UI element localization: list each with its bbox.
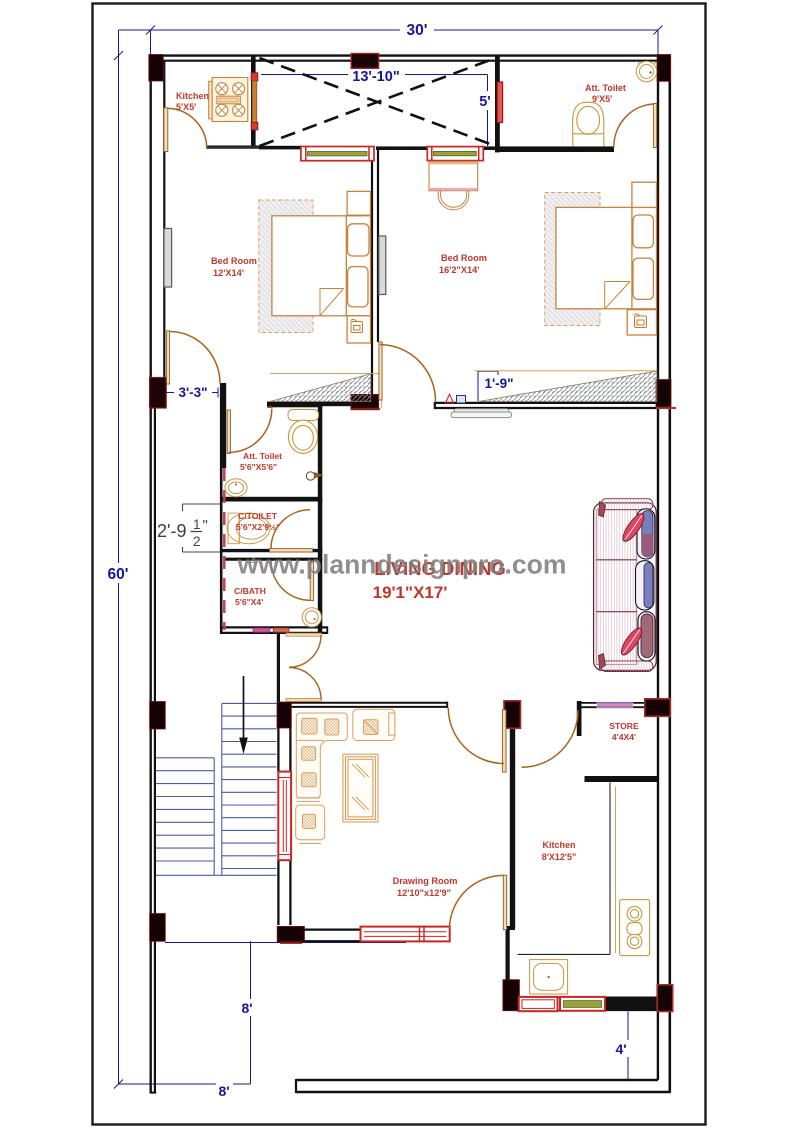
svg-text:4'4X4': 4'4X4' (612, 732, 636, 742)
svg-text:30': 30' (407, 22, 428, 39)
svg-text:8': 8' (218, 1083, 229, 1099)
svg-text:Att. Toilet: Att. Toilet (585, 83, 626, 93)
svg-text:5'6"X4': 5'6"X4' (235, 597, 263, 607)
svg-text:16'2"X14': 16'2"X14' (439, 265, 479, 275)
svg-text:Kitchen: Kitchen (176, 91, 209, 101)
svg-text:5'6"X5'6": 5'6"X5'6" (240, 462, 277, 472)
svg-text:STORE: STORE (609, 721, 639, 731)
svg-text:2'-9: 2'-9 (157, 521, 186, 541)
svg-text:Bed Room: Bed Room (211, 256, 257, 266)
svg-text:C/TOILET: C/TOILET (238, 511, 278, 521)
svg-text:Att. Toilet: Att. Toilet (243, 451, 282, 461)
svg-text:Kitchen: Kitchen (542, 840, 575, 850)
svg-text:Drawing Room: Drawing Room (393, 876, 458, 886)
svg-text:": " (203, 517, 208, 534)
svg-text:C/BATH: C/BATH (234, 586, 266, 596)
svg-text:19'1"X17': 19'1"X17' (373, 583, 448, 602)
svg-text:www.planndesignpro.com: www.planndesignpro.com (237, 550, 567, 580)
svg-text:Bed Room: Bed Room (441, 253, 487, 263)
svg-text:3'-3": 3'-3" (178, 385, 207, 400)
svg-text:5'X5': 5'X5' (176, 102, 196, 112)
svg-text:5': 5' (479, 94, 491, 110)
svg-text:2: 2 (193, 534, 201, 549)
svg-text:4': 4' (615, 1041, 626, 1057)
svg-text:5'6"X2'9½": 5'6"X2'9½" (236, 522, 280, 532)
svg-text:9'X5': 9'X5' (592, 94, 612, 104)
svg-text:60': 60' (108, 566, 129, 583)
svg-text:8': 8' (241, 1000, 252, 1016)
svg-text:8'X12'5": 8'X12'5" (542, 852, 577, 862)
svg-text:12'10"x12'9": 12'10"x12'9" (397, 888, 451, 898)
svg-text:13'-10": 13'-10" (352, 69, 399, 85)
svg-text:1: 1 (193, 517, 201, 532)
svg-text:1'-9": 1'-9" (484, 376, 513, 391)
svg-text:12'X14': 12'X14' (213, 268, 244, 278)
